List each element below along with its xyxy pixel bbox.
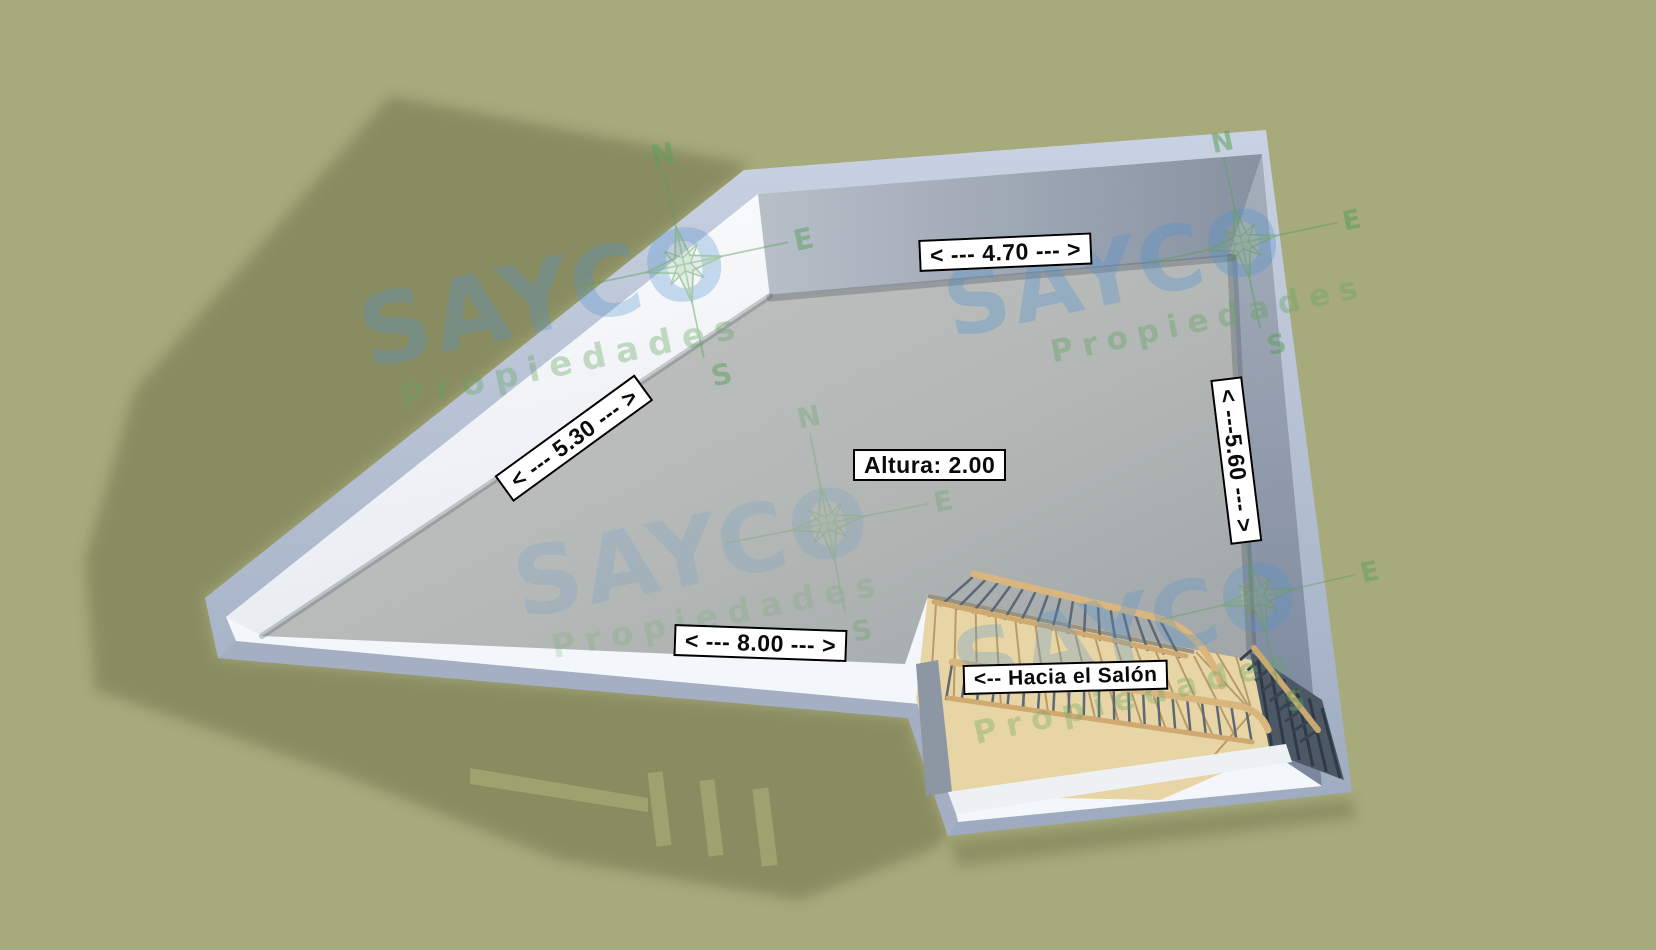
dimension-label-bottom: < --- 8.00 --- > bbox=[673, 624, 847, 662]
height-label: Altura: 2.00 bbox=[853, 449, 1006, 481]
floorplan-3d-render: SAYCO Propiedades N E S SAYCO Propiedade… bbox=[0, 0, 1656, 950]
scene-canvas: SAYCO Propiedades N E S SAYCO Propiedade… bbox=[0, 0, 1656, 950]
stairs-direction-label: <-- Hacia el Salón bbox=[963, 660, 1169, 696]
